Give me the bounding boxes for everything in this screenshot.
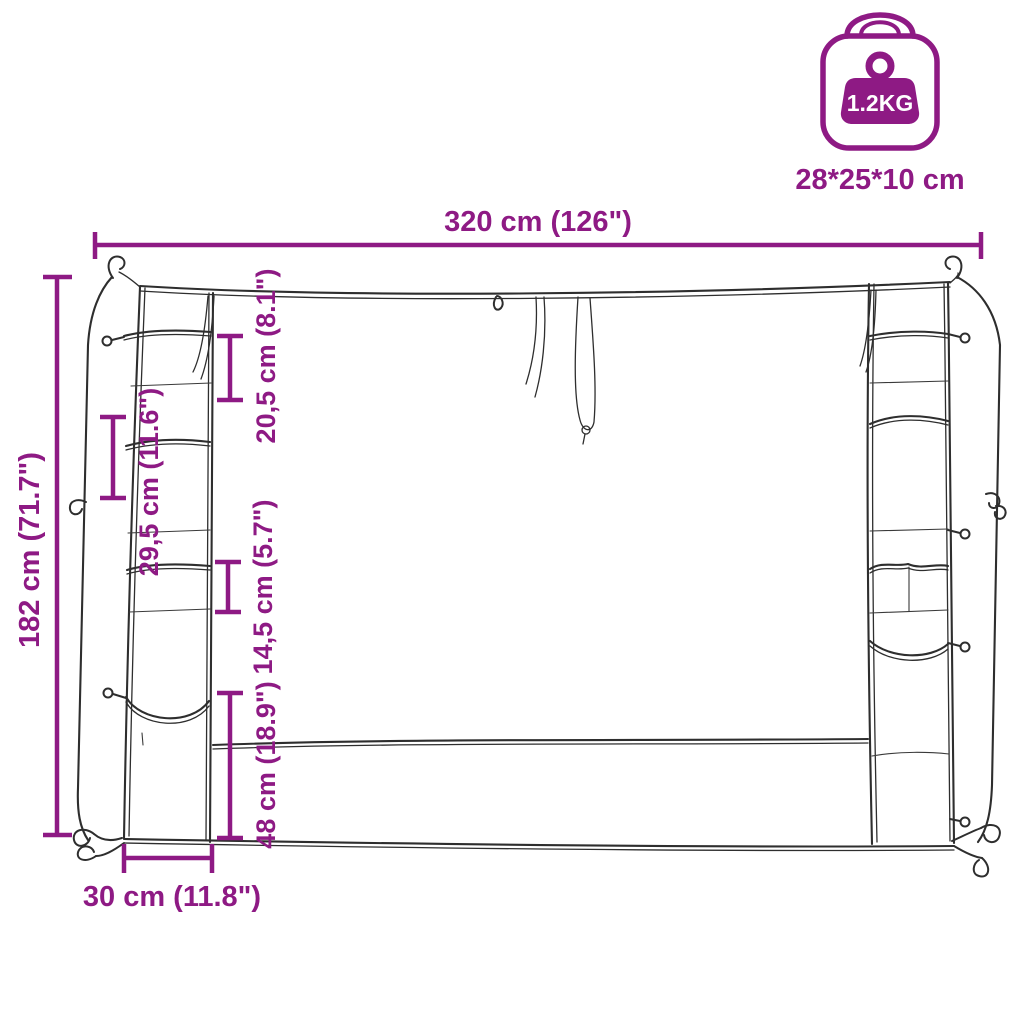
hook-icon [961, 643, 970, 652]
dim-label-bottom-section: 48 cm (18.9") [251, 681, 281, 848]
dim-label-total-width: 320 cm (126") [444, 206, 632, 238]
dim-small-pocket: 14,5 cm (5.7") [215, 500, 278, 675]
hook-icon [103, 337, 112, 346]
hook-icon [961, 530, 970, 539]
hook-icon [78, 846, 96, 860]
hanging-ties [193, 290, 876, 444]
hook-icon [974, 858, 988, 876]
hook-icon [961, 334, 970, 343]
dim-side-panel-width: 30 cm (11.8") [83, 844, 261, 913]
bag-handle-icon [847, 15, 913, 36]
hook-icon [946, 257, 962, 278]
bottom-edge [124, 739, 954, 851]
right-outer-frame [946, 257, 1006, 877]
dim-label-large-pocket: 29,5 cm (11.6") [134, 388, 164, 576]
package-size-label: 28*25*10 cm [795, 164, 964, 196]
dim-label-total-height: 182 cm (71.7") [14, 452, 46, 648]
package-info: 1.2KG 28*25*10 cm [795, 15, 964, 196]
dim-label-small-pocket: 14,5 cm (5.7") [248, 500, 278, 675]
dim-total-width: 320 cm (126") [95, 206, 981, 259]
diagram-canvas: 320 cm (126") 182 cm (71.7") 20,5 cm (8.… [0, 0, 1024, 1024]
package-weight-label: 1.2KG [847, 90, 913, 116]
product-dimension-diagram: 320 cm (126") 182 cm (71.7") 20,5 cm (8.… [0, 0, 1024, 1024]
left-outer-frame [70, 257, 125, 860]
package-weight-icon: 1.2KG [823, 15, 937, 148]
hook-icon [109, 257, 125, 278]
right-pocket-panel [868, 283, 970, 844]
dimension-annotations: 320 cm (126") 182 cm (71.7") 20,5 cm (8.… [14, 206, 981, 913]
dim-bottom-section: 48 cm (18.9") [217, 681, 281, 848]
hook-icon [961, 818, 970, 827]
dim-label-top-pocket: 20,5 cm (8.1") [251, 269, 281, 444]
dim-total-height: 182 cm (71.7") [14, 277, 72, 835]
organizer-sketch [70, 257, 1006, 877]
hook-icon [104, 689, 113, 698]
dim-label-side-panel-width: 30 cm (11.8") [83, 881, 261, 913]
weight-ring-icon [869, 55, 891, 77]
top-bar [119, 272, 958, 299]
